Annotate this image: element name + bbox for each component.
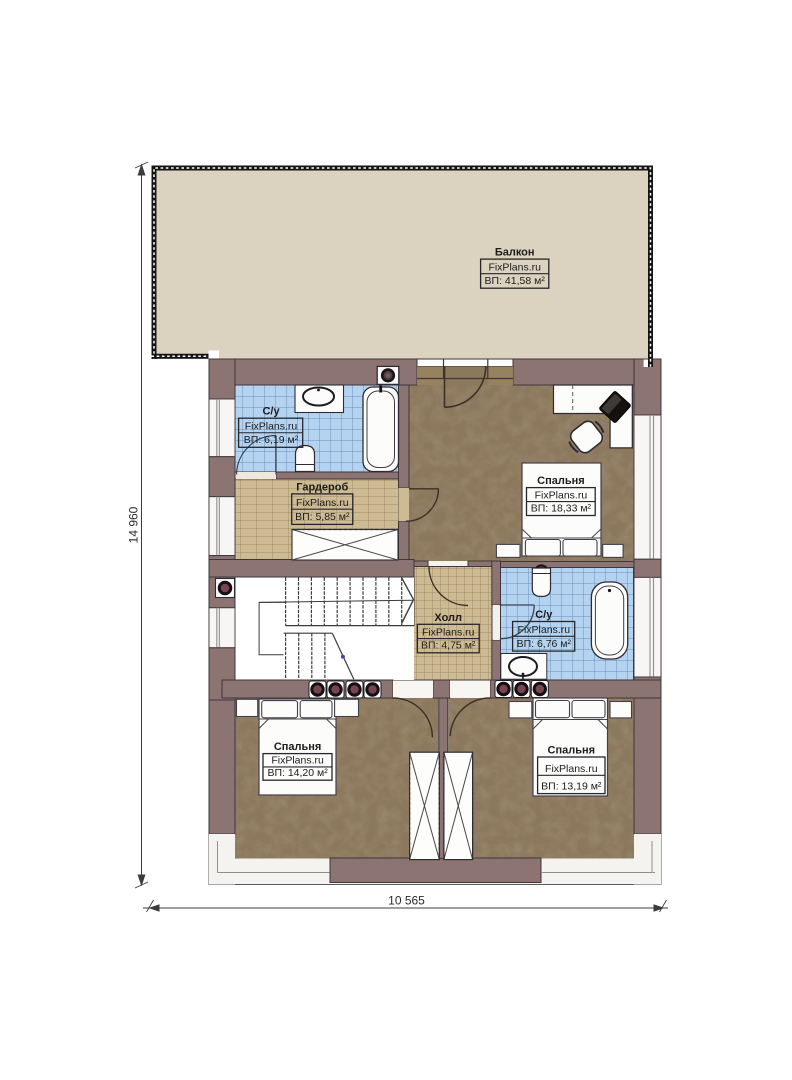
svg-text:ВП: 4,75 м²: ВП: 4,75 м² xyxy=(421,640,476,652)
svg-text:С/у: С/у xyxy=(262,406,280,418)
svg-text:14 960: 14 960 xyxy=(127,506,141,543)
svg-text:FixPlans.ru: FixPlans.ru xyxy=(271,755,324,767)
svg-text:FixPlans.ru: FixPlans.ru xyxy=(488,261,541,273)
svg-text:ВП: 5,85 м²: ВП: 5,85 м² xyxy=(295,511,350,523)
svg-text:ВП: 13,19 м²: ВП: 13,19 м² xyxy=(541,780,602,792)
svg-text:Холл: Холл xyxy=(434,612,462,624)
svg-text:Балкон: Балкон xyxy=(495,247,535,259)
svg-text:Спальня: Спальня xyxy=(548,745,596,757)
svg-text:FixPlans.ru: FixPlans.ru xyxy=(518,624,571,636)
svg-text:Спальня: Спальня xyxy=(274,741,322,753)
svg-text:ВП: 6,19 м²: ВП: 6,19 м² xyxy=(244,434,299,446)
svg-text:FixPlans.ru: FixPlans.ru xyxy=(296,497,349,509)
svg-text:ВП: 41,58 м²: ВП: 41,58 м² xyxy=(485,275,546,287)
svg-text:ВП: 14,20 м²: ВП: 14,20 м² xyxy=(267,767,328,779)
svg-text:FixPlans.ru: FixPlans.ru xyxy=(535,489,588,501)
svg-text:ВП: 6,76 м²: ВП: 6,76 м² xyxy=(517,638,572,650)
svg-text:Спальня: Спальня xyxy=(537,475,585,487)
svg-text:С/у: С/у xyxy=(535,609,553,621)
svg-text:FixPlans.ru: FixPlans.ru xyxy=(545,763,598,775)
svg-text:10 565: 10 565 xyxy=(388,894,425,908)
svg-text:ВП: 18,33 м²: ВП: 18,33 м² xyxy=(531,502,592,514)
svg-text:Гардероб: Гардероб xyxy=(296,481,348,493)
svg-text:FixPlans.ru: FixPlans.ru xyxy=(422,626,475,638)
svg-text:FixPlans.ru: FixPlans.ru xyxy=(245,421,298,433)
